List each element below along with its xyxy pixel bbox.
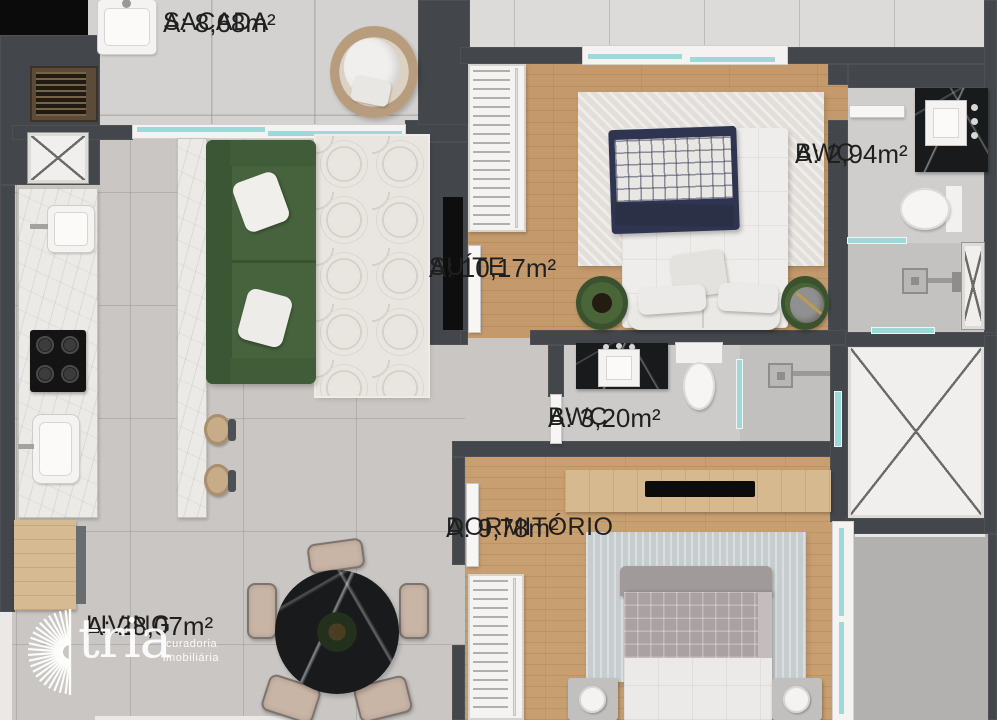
- wall-shaft-top: [845, 332, 997, 347]
- bwc-social-shower-partition: [737, 360, 742, 428]
- service-glass-sliver: [835, 392, 841, 446]
- lamp: [783, 686, 810, 713]
- room-area-bwc-social: A: 3,20m²: [548, 403, 661, 433]
- dorm-window-glass-a: [839, 528, 844, 616]
- suite-window-glass-left: [588, 54, 682, 59]
- wall-shaft-bottom: [845, 518, 997, 534]
- bwc-social-shower-arm: [793, 371, 830, 376]
- sofa-seat-split: [232, 260, 316, 263]
- bwc-suite-x-panel: [962, 243, 984, 329]
- toilet-bowl: [683, 362, 715, 410]
- kitchen-sink-1: [48, 206, 94, 252]
- vanity-sink: [598, 349, 640, 387]
- floor-bwc-social-shower: [740, 345, 830, 455]
- island-stool-2-back: [228, 470, 236, 492]
- dorm-tv: [645, 481, 755, 497]
- side-table: [790, 287, 824, 323]
- living-rug: [316, 136, 428, 396]
- sofa-pillow-1: [230, 170, 291, 235]
- kitchen-cabinet-wood: [14, 520, 76, 610]
- wall-suite-bottom-a: [460, 330, 468, 345]
- bwc-suite-shower-partition: [848, 238, 906, 243]
- wall-dorm-top: [452, 441, 848, 457]
- wall-black-box: [0, 0, 88, 35]
- tub-faucet: [122, 0, 131, 8]
- faucet-dot-3: [971, 132, 978, 139]
- sofa-pillow-2: [236, 287, 294, 349]
- sink-basin: [54, 212, 88, 246]
- brand-name: tria: [78, 614, 171, 664]
- sink-basin: [39, 422, 72, 476]
- kitchen-cabinet-handle: [76, 526, 86, 604]
- suite-pillow-right: [717, 282, 778, 313]
- floor-strip-bottom: [95, 716, 295, 720]
- sunburst-icon: [20, 606, 76, 698]
- room-area-sacada: A: 8,68m²: [163, 8, 276, 38]
- faucet-dot-2: [971, 118, 978, 125]
- sofa-arm-bottom: [230, 358, 316, 384]
- bwc-suite-shower-head: [902, 268, 928, 294]
- dining-chair-right: [399, 583, 429, 639]
- dining-centerpiece-plant: [317, 612, 357, 652]
- bwc-social-vanity: [576, 343, 668, 389]
- closet-rail: [513, 578, 516, 716]
- bwc-suite-toilet: [900, 186, 962, 232]
- wall-dorm-left-b: [452, 645, 465, 720]
- closet-hangers: [473, 70, 510, 226]
- floor-outside-bottom-right: [853, 534, 988, 720]
- shower-head-dot: [777, 372, 785, 380]
- bwc-suite-door-leaf: [850, 106, 904, 117]
- lamp: [579, 686, 606, 713]
- island-stool-1-back: [228, 419, 236, 441]
- wall-left-outer: [0, 185, 15, 612]
- room-area-dormitorio: A: 9,78m²: [446, 513, 559, 543]
- suite-blanket-band: [615, 203, 733, 227]
- dorm-blanket-fold: [758, 592, 772, 658]
- kitchen-island: [177, 138, 207, 518]
- floor-plan: SACADA A: 8,68m² BWC A: 2,94m² SUÍTE A: …: [0, 0, 997, 720]
- tub-basin: [104, 8, 150, 46]
- kitchen-sink-2: [33, 415, 79, 483]
- brand-watermark: tria curadoria imobiliária: [20, 600, 280, 710]
- sliding-door-glass-left: [137, 127, 265, 132]
- bwc-suite-shower-partition-b: [872, 328, 934, 333]
- suite-rug-table-right: [781, 276, 829, 330]
- bwc-suite-shower-valve: [952, 272, 961, 292]
- wall-suite-bwc-a: [828, 64, 848, 85]
- vanity-sink: [925, 100, 967, 146]
- laundry-tub: [98, 0, 156, 54]
- wall-right-outer-bottom: [988, 534, 997, 720]
- dorm-blanket: [624, 592, 772, 658]
- brand-tagline-2: imobiliária: [163, 652, 219, 665]
- faucet-dot-2: [616, 343, 622, 349]
- grill-grate: [36, 72, 86, 116]
- shaft-x-area: [848, 345, 984, 518]
- sink-inner: [933, 108, 959, 138]
- wall-bwc-social-left: [548, 345, 564, 397]
- bwc-social-shower-head: [768, 363, 793, 388]
- island-stool-1: [204, 414, 231, 445]
- suite-blanket: [608, 126, 740, 234]
- kitchen-faucet-2: [18, 444, 34, 449]
- burner-3: [36, 365, 54, 383]
- closet-rail: [515, 68, 518, 228]
- bwc-social-toilet: [676, 343, 722, 411]
- dorm-bed: [624, 592, 772, 720]
- kitchen-faucet-1: [30, 224, 48, 229]
- suite-rug-plant-left: [576, 276, 628, 330]
- sofa-back: [206, 140, 232, 384]
- shower-head-dot: [911, 277, 919, 285]
- dining-table: [275, 570, 399, 694]
- sofa-arm-top: [230, 140, 316, 166]
- wall-bwc-suite-top-band: [848, 64, 988, 88]
- room-area-bwc-suite: A: 2,94m²: [795, 139, 908, 169]
- floor-outside-top: [420, 0, 997, 47]
- papasan-chair: [330, 26, 418, 118]
- faucet-dot-3: [629, 344, 635, 350]
- faucet-dot-1: [971, 104, 978, 111]
- toilet-tank: [676, 343, 722, 363]
- bwc-suite-shower-arm: [928, 278, 952, 283]
- outside-edge-line: [855, 534, 985, 537]
- suite-pillow-left: [637, 284, 707, 316]
- dorm-nightstand-right: [772, 678, 822, 720]
- suite-blanket-check: [615, 136, 733, 202]
- grill-frame: [30, 66, 98, 122]
- dorm-nightstand-left: [568, 678, 618, 720]
- dorm-closet: [468, 574, 524, 720]
- floor-outside-bottom-left: [0, 612, 12, 720]
- burner-1: [36, 336, 54, 354]
- suite-window-glass-right: [690, 57, 775, 62]
- toilet-bowl: [900, 188, 950, 230]
- burner-2: [61, 336, 79, 354]
- stove: [30, 330, 86, 392]
- dorm-window-glass-b: [839, 622, 844, 714]
- island-stool-2: [204, 464, 231, 496]
- suite-closet: [468, 64, 526, 232]
- wall-right-outer-mid: [984, 335, 997, 534]
- bwc-suite-vanity: [915, 88, 988, 172]
- wall-dorm-left-a: [452, 457, 465, 565]
- brand-tagline-1: curadoria: [166, 638, 217, 651]
- sofa: [206, 140, 316, 384]
- room-area-suite: A: 10,17m²: [429, 253, 556, 283]
- kitchen-x-box: [28, 133, 88, 183]
- plant-pot: [592, 293, 612, 313]
- sink-inner: [606, 356, 632, 380]
- faucet-dot-1: [603, 344, 609, 350]
- closet-hangers: [473, 580, 508, 714]
- burner-4: [61, 365, 79, 383]
